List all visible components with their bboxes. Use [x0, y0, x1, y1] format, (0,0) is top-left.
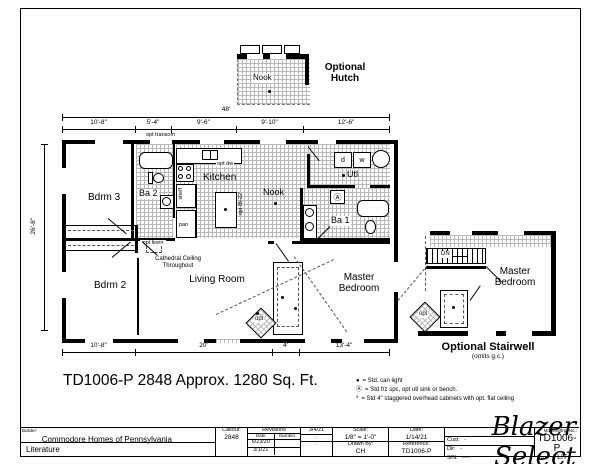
reference-value: TD1006-P: [389, 448, 444, 455]
can-light-icon: [224, 208, 227, 211]
dim-segment: 5'-4": [135, 119, 171, 126]
toilet-icon: [153, 173, 164, 183]
date-value: 1/14/21: [389, 434, 444, 441]
legend-text: = Std 4" staggered overhead cabinets wit…: [361, 395, 514, 404]
can-light-icon: [281, 296, 284, 299]
toilet-icon: [365, 220, 376, 234]
stairs-dn-label: DN: [440, 251, 451, 258]
window: [260, 140, 286, 144]
opt-dw-note: opt dw: [216, 161, 234, 167]
pg-label: Pg:: [535, 456, 545, 462]
hutch-nook-floor: [237, 59, 310, 105]
drawn-by-value: CH: [333, 448, 388, 455]
window: [150, 140, 172, 144]
legend-symbol-can-light: ●: [356, 377, 360, 386]
legend: ● = Std. can light Ⓐ = Std frz spc, opt …: [356, 377, 586, 404]
washer-icon: w: [353, 152, 371, 168]
dryer-icon: d: [334, 152, 352, 168]
frz-space-icon: Ⓐ: [330, 190, 345, 204]
shelf-note: shelf: [178, 188, 184, 200]
can-light-icon: [256, 312, 259, 315]
ba2-label: Ba 2: [138, 189, 159, 199]
dim-segment: 20': [135, 342, 272, 349]
cabinet-icon: [284, 45, 300, 54]
cabinet-icon: [240, 45, 260, 54]
window: [468, 331, 496, 336]
callout-cell: Callout: 2848: [215, 428, 247, 456]
rev-right-row: .: [301, 442, 332, 448]
living-room-label: Living Room: [186, 274, 248, 285]
bathtub-icon: [357, 200, 389, 217]
island-note: opt IB-22': [238, 192, 244, 215]
title-block: Builder: Commodore Homes of Pennsylvania…: [20, 427, 579, 456]
door-swing: [276, 243, 289, 262]
floor-plan-sheet: Nook Optional Hutch 48' 10'-8" 5'-4" 9'-…: [0, 0, 600, 464]
date-cell: Date: 1/14/21 Reference: TD1006-P: [388, 428, 444, 456]
water-heater-icon: [372, 150, 390, 168]
utl-label: Utl: [347, 170, 358, 180]
can-light-icon: [452, 306, 455, 309]
wall: [305, 59, 309, 85]
dim-line: [62, 117, 390, 118]
pan-note: pan: [179, 222, 188, 228]
master-bedroom-label: Master Bedroom: [328, 272, 390, 294]
model-number: TD1006-P: [535, 434, 579, 454]
window: [62, 272, 66, 298]
door-opening: [318, 140, 336, 144]
cathedral-note: Cathedral Ceiling Throughout: [147, 256, 209, 269]
rev-row-date: 6/23/20: [248, 440, 275, 447]
window: [506, 331, 532, 336]
opt-note: opt: [418, 311, 428, 318]
cabinet-icon: [262, 45, 282, 54]
sn-label: S/N:: [447, 455, 458, 461]
callout-value: 2848: [216, 434, 247, 441]
dim-segment: 12'-6": [303, 119, 389, 126]
dim-segment: 10'-8": [62, 342, 135, 349]
revisions-cell: Revisions Date Number 6/23/20 3/1/21: [247, 428, 300, 456]
window: [394, 262, 398, 292]
hutch-caption: Optional Hutch: [316, 62, 374, 84]
can-light-icon: [274, 202, 277, 205]
literature-label: Literature: [20, 443, 215, 454]
scale-value: 1/8" = 1'-0": [333, 434, 388, 441]
revisions-cell-2: 3/4/21 . .: [300, 428, 332, 456]
dim-left-height: 26'-8": [30, 218, 37, 235]
dim-segment: 10'-8": [62, 119, 135, 126]
dim-overall-width: 48': [62, 106, 390, 113]
legend-symbol-frz: Ⓐ: [356, 386, 362, 395]
legend-text: = Std. can light: [363, 377, 403, 386]
ba1-label: Ba 1: [330, 216, 351, 226]
sn-value: ----: [462, 455, 469, 461]
builder-name: Commodore Homes of Pennsylvania: [42, 435, 172, 444]
opt-transom-note: opt transom: [146, 132, 175, 138]
bdrm3-label: Bdrm 3: [88, 192, 120, 203]
can-light-icon: [294, 307, 297, 310]
pg-value: LIT: [545, 454, 579, 461]
window: [62, 168, 66, 194]
stairwell-subcaption: (omits g.c.): [418, 353, 558, 360]
nook-label: Nook: [263, 188, 284, 198]
can-light-icon: [342, 174, 345, 177]
builder-cell: Builder: Commodore Homes of Pennsylvania…: [20, 428, 215, 456]
dim-segment: 9'-6": [171, 119, 236, 126]
dim-segment: 9'-10": [236, 119, 303, 126]
stairwell-master-label: Master Bedroom: [480, 266, 550, 288]
window: [200, 140, 224, 144]
bathtub-icon: [139, 152, 173, 169]
opt-note: opt: [254, 316, 264, 323]
kitchen-label: Kitchen: [203, 172, 236, 183]
dim-segment: 4': [272, 342, 299, 349]
sink-icon: [162, 197, 171, 206]
sink-icon: [305, 222, 314, 231]
window: [95, 140, 123, 144]
main-floor-plan: opt Ba 2 opt linen opt dw shelf pan Kitc…: [62, 140, 398, 343]
plan-summary-title: TD1006-P 2848 Approx. 1280 Sq. Ft.: [63, 372, 318, 389]
legend-symbol-asterisk: *: [356, 395, 358, 404]
door-swing: [108, 218, 127, 234]
dim-segment: 13'-4": [299, 342, 389, 349]
cust-value: -: [464, 437, 466, 443]
legend-text: = Std frz spc, opt utl sink or bench.: [365, 386, 457, 395]
sink-icon: [305, 208, 314, 217]
hutch-nook-label: Nook: [252, 74, 273, 83]
model-cell: Model/Mfrg. No.: TD1006-P Pg: LIT: [534, 428, 579, 456]
can-light-icon: [268, 90, 271, 93]
nook-floor-edge: [430, 235, 555, 247]
rev-row-date: 3/1/21: [248, 448, 275, 455]
scale-cell: Scale: 1/8" = 1'-0" Drawn By: CH: [332, 428, 388, 456]
bdrm2-label: Bdrm 2: [94, 280, 126, 291]
stairwell-caption: Optional Stairwell: [418, 341, 558, 353]
builder-label: Builder:: [22, 428, 37, 433]
rev-number-col: Number: [275, 434, 301, 439]
customer-cell: Cust: - Dlr: - S/N: ----: [444, 428, 534, 456]
opt-fireplace: [245, 307, 276, 338]
